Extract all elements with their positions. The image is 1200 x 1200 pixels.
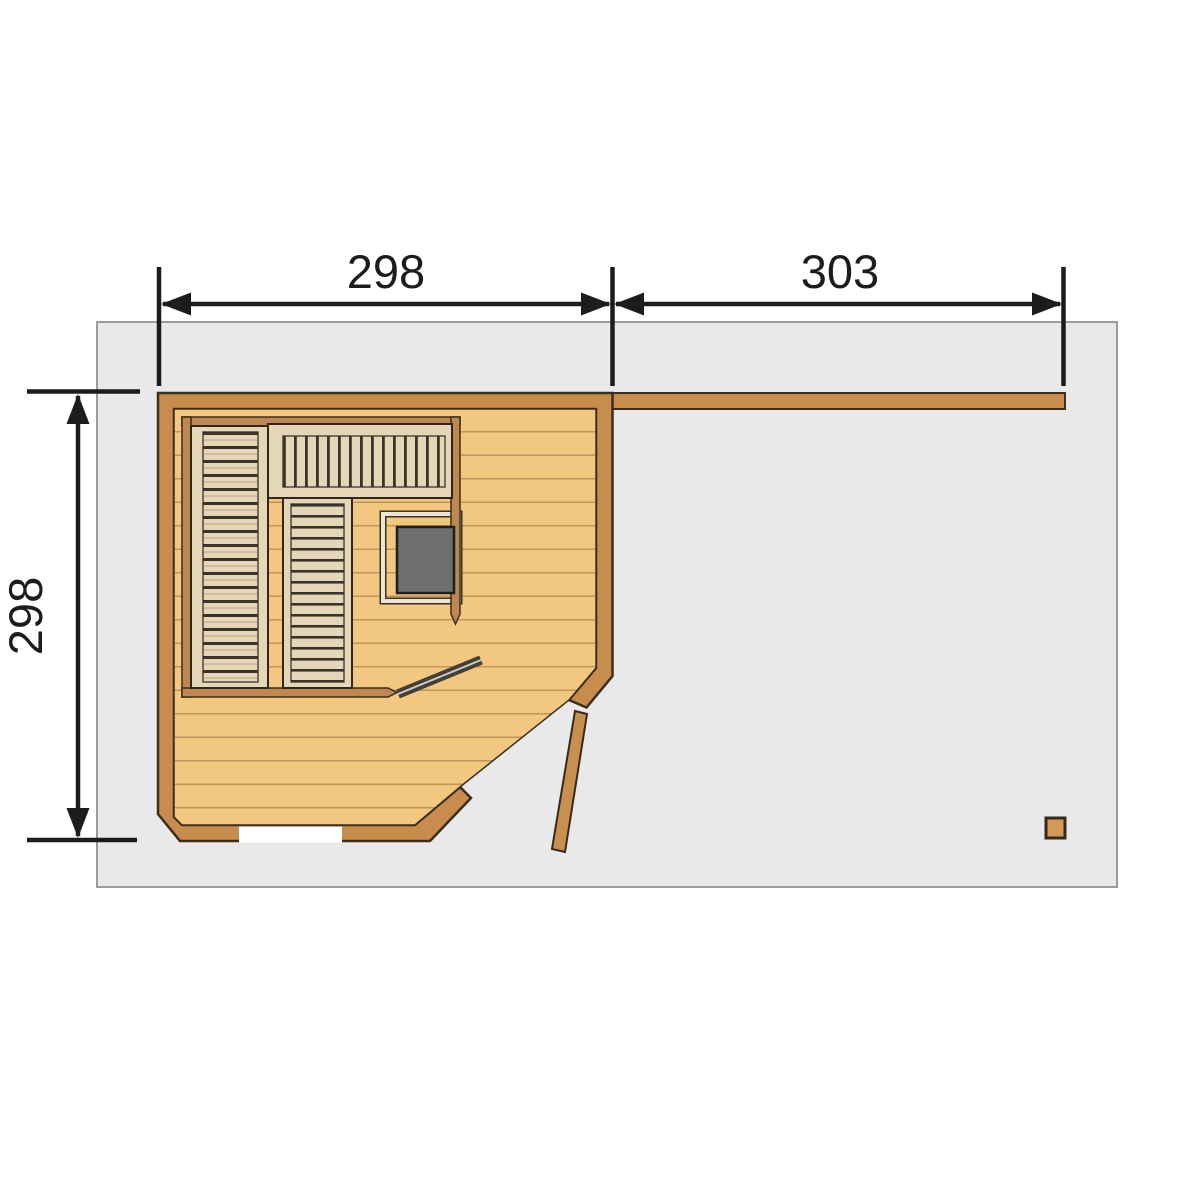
arrow-left-icon xyxy=(161,293,191,316)
arrow-down-icon xyxy=(67,808,90,838)
dimension-label: 298 xyxy=(347,245,425,298)
dimension-label: 303 xyxy=(801,245,879,298)
heater xyxy=(397,527,454,593)
arrow-right-icon xyxy=(1032,293,1062,316)
arrow-left-icon xyxy=(614,293,644,316)
cabin-wall-bottom xyxy=(182,688,397,697)
arrow-right-icon xyxy=(581,293,611,316)
floor-plan-canvas: 298 303 298 xyxy=(0,0,1200,1200)
threshold-window xyxy=(239,827,342,843)
bench-middle xyxy=(283,498,352,688)
cabin-wall-left xyxy=(182,417,191,697)
bench-left xyxy=(191,426,268,688)
floor-plan-page: 298 303 298 xyxy=(0,0,1200,1200)
bench-top xyxy=(268,424,452,498)
dimension-label: 298 xyxy=(0,577,52,655)
support-post xyxy=(1046,818,1065,838)
privacy-wall xyxy=(613,393,1066,409)
arrow-up-icon xyxy=(67,394,90,424)
